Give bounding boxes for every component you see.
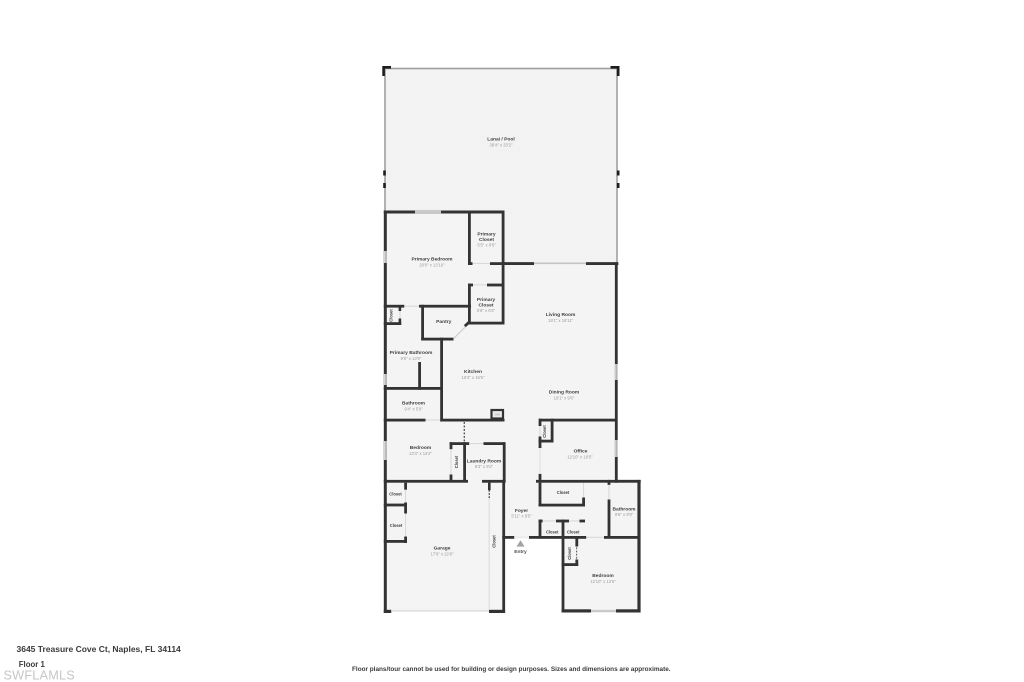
svg-text:Entry: Entry (514, 549, 527, 555)
svg-text:13'4" x 14'2": 13'4" x 14'2" (409, 451, 432, 456)
svg-text:Closet: Closet (546, 530, 559, 535)
svg-text:12'10" x 10'5": 12'10" x 10'5" (567, 454, 593, 459)
svg-text:Primary: Primary (477, 297, 495, 303)
svg-text:3645 Treasure Cove Ct, Naples,: 3645 Treasure Cove Ct, Naples, FL 34114 (17, 644, 182, 654)
svg-text:20'0" x 13'10": 20'0" x 13'10" (419, 263, 445, 268)
svg-text:5'6" x 6'6": 5'6" x 6'6" (477, 308, 496, 313)
svg-text:Closet: Closet (492, 535, 497, 548)
svg-text:19'1" x 9'6": 19'1" x 9'6" (554, 395, 575, 400)
svg-text:Closet: Closet (390, 523, 403, 528)
svg-text:Closet: Closet (542, 425, 547, 438)
svg-text:12'10" x 12'6": 12'10" x 12'6" (590, 579, 616, 584)
svg-text:Closet: Closet (389, 492, 402, 497)
svg-text:16'3" x 16'5": 16'3" x 16'5" (462, 375, 485, 380)
svg-text:9'8" x 9'9": 9'8" x 9'9" (615, 512, 634, 517)
svg-text:Floor plans/tour cannot be use: Floor plans/tour cannot be used for buil… (352, 666, 671, 673)
svg-text:Closet: Closet (557, 490, 570, 495)
svg-text:Closet: Closet (389, 309, 394, 322)
svg-text:8'3" x 9'2": 8'3" x 9'2" (475, 464, 494, 469)
svg-text:Closet: Closet (454, 455, 459, 468)
svg-text:38'4" x 33'2": 38'4" x 33'2" (490, 142, 513, 147)
svg-text:SWFLAMLS: SWFLAMLS (4, 669, 75, 682)
svg-text:17'9" x 22'8": 17'9" x 22'8" (431, 551, 454, 556)
svg-text:Pantry: Pantry (436, 319, 452, 325)
svg-text:5'11" x 8'5": 5'11" x 8'5" (511, 514, 532, 519)
svg-text:9'6" x 13'9": 9'6" x 13'9" (401, 356, 422, 361)
svg-text:19'1" x 16'11": 19'1" x 16'11" (548, 318, 573, 323)
svg-text:Closet: Closet (567, 547, 572, 560)
svg-text:5'5" x 8'6": 5'5" x 8'6" (477, 243, 496, 248)
svg-text:9'4" x 5'9": 9'4" x 5'9" (404, 406, 423, 411)
svg-text:Primary: Primary (477, 232, 495, 238)
svg-text:Closet: Closet (567, 530, 580, 535)
